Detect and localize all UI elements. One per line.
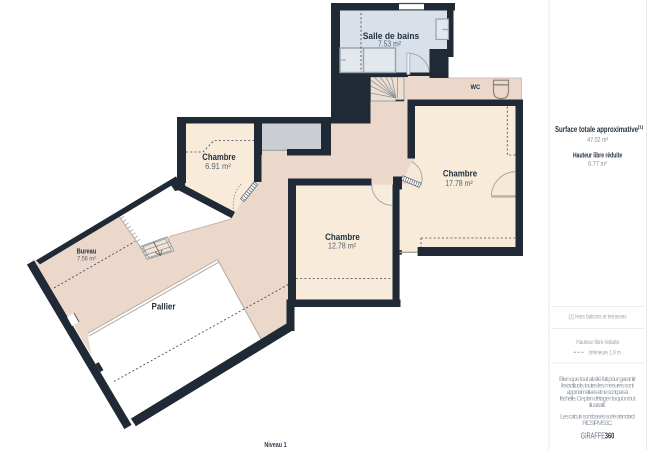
svg-text:RICS IPMS 3C.: RICS IPMS 3C. bbox=[582, 420, 613, 427]
svg-text:WC: WC bbox=[471, 84, 481, 91]
svg-text:Hauteur libre réduite: Hauteur libre réduite bbox=[576, 339, 619, 346]
svg-text:Niveau 1: Niveau 1 bbox=[264, 442, 286, 449]
svg-text:Inférieure 1.9 m: Inférieure 1.9 m bbox=[589, 350, 622, 357]
svg-text:illustratif.: illustratif. bbox=[589, 402, 606, 409]
svg-text:Pallier: Pallier bbox=[152, 302, 176, 312]
svg-text:7.56 m²: 7.56 m² bbox=[77, 256, 96, 263]
svg-text:17.78 m²: 17.78 m² bbox=[445, 179, 473, 188]
svg-text:GIRAFFE360: GIRAFFE360 bbox=[581, 431, 615, 441]
svg-text:12.78 m²: 12.78 m² bbox=[328, 242, 356, 251]
svg-text:(1) Hors balcons et terrasses: (1) Hors balcons et terrasses bbox=[569, 314, 628, 321]
svg-text:Bureau: Bureau bbox=[77, 247, 97, 256]
svg-text:(1): (1) bbox=[638, 125, 644, 130]
svg-text:Chambre: Chambre bbox=[443, 169, 477, 180]
svg-text:Hauteur libre réduite: Hauteur libre réduite bbox=[573, 150, 622, 159]
svg-text:6.77 m²: 6.77 m² bbox=[588, 161, 607, 168]
svg-text:7.53 m²: 7.53 m² bbox=[378, 40, 401, 49]
svg-text:47.02 m²: 47.02 m² bbox=[587, 137, 608, 144]
svg-text:Surface totale approximative: Surface totale approximative bbox=[555, 125, 638, 134]
svg-text:6.91 m²: 6.91 m² bbox=[205, 162, 231, 171]
